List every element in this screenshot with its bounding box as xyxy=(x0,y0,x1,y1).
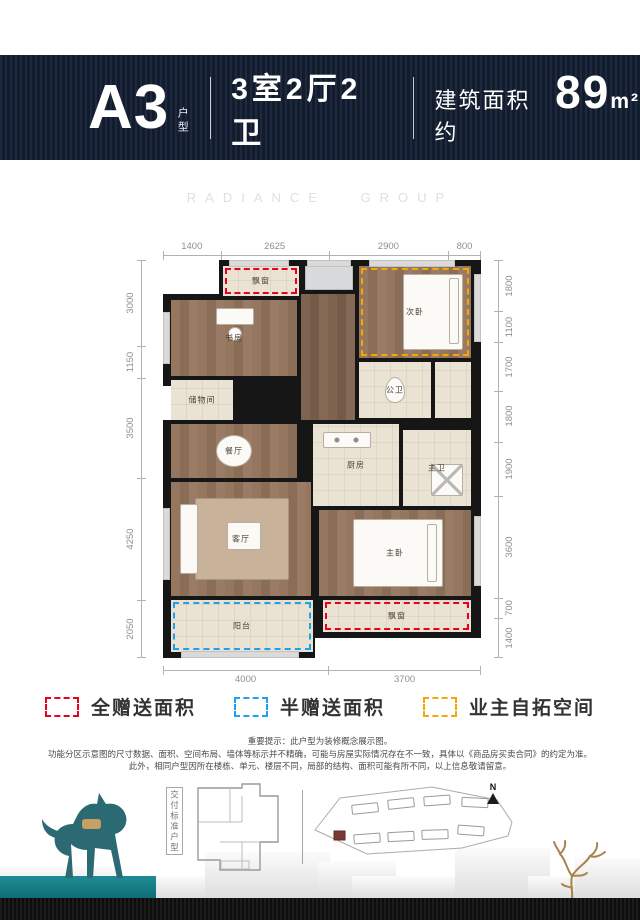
legend-item: 业主自拓空间 xyxy=(423,693,595,720)
room-guest-bathroom: 公卫 xyxy=(359,362,431,418)
dimension-segment: 1900 xyxy=(492,442,514,496)
room-dining-room: 餐厅 xyxy=(171,424,297,478)
room-label: 主卧 xyxy=(319,548,471,559)
dimension-segment: 1400 xyxy=(492,618,514,658)
room-label: 飘窗 xyxy=(223,276,299,287)
dimension-segment: 1100 xyxy=(492,311,514,342)
dimension-segment: 800 xyxy=(448,238,481,260)
legend-label: 业主自拓空间 xyxy=(469,693,595,720)
footer-black-band xyxy=(0,898,640,920)
dimension-segment: 700 xyxy=(492,598,514,618)
delivery-standard-label: 交付标准户型 xyxy=(169,790,181,853)
room-label: 书房 xyxy=(171,333,297,344)
room-master-bathroom: 主卫 xyxy=(403,430,471,506)
dimension-segment: 3700 xyxy=(328,666,481,688)
floorplan: 飘窗次卧书房储物间公卫餐厅厨房主卫客厅主卧阳台飘窗 xyxy=(163,260,481,658)
dimension-segment: 1800 xyxy=(492,391,514,442)
dimension-label: 1800 xyxy=(504,275,515,296)
dimension-label: 4250 xyxy=(125,528,136,549)
legend: 全赠送面积半赠送面积业主自拓空间 xyxy=(0,693,640,720)
room-label: 厨房 xyxy=(313,460,399,471)
dimension-label: 3600 xyxy=(504,537,515,558)
dimension-segment: 1150 xyxy=(126,346,148,379)
dimension-label: 1100 xyxy=(504,317,515,337)
dimension-label: 4000 xyxy=(163,674,328,685)
built-area: 建筑面积约 89 m² xyxy=(434,69,640,147)
dimension-label: 1400 xyxy=(163,241,221,252)
north-compass: N xyxy=(486,783,500,804)
room-label: 公卫 xyxy=(359,385,431,396)
floorplan-poster: A3 户型 3室2厅2卫 建筑面积约 89 m² RADIANCE GROUP … xyxy=(0,0,640,920)
dimension-segment: 2900 xyxy=(329,238,448,260)
room-balcony: 阳台 xyxy=(171,600,313,652)
room-label: 客厅 xyxy=(171,534,311,545)
brand-watermark: RADIANCE GROUP xyxy=(0,190,640,205)
room-closet xyxy=(435,362,471,418)
window xyxy=(229,260,289,267)
window xyxy=(163,508,170,580)
header-band: A3 户型 3室2厅2卫 建筑面积约 89 m² xyxy=(0,55,640,160)
disclaimer-line: 重要提示：此户型为装修概念展示图。 xyxy=(36,735,604,748)
dimension-label: 700 xyxy=(504,600,515,616)
plan-cutout xyxy=(163,260,219,294)
room-label: 餐厅 xyxy=(171,446,297,457)
dimension-label: 3000 xyxy=(125,292,136,313)
mini-floorplan-drawing xyxy=(190,782,285,877)
dimension-label: 3700 xyxy=(328,674,481,685)
plan-cutout xyxy=(315,638,481,658)
room-study: 书房 xyxy=(171,300,297,376)
footer-divider xyxy=(302,790,303,864)
dimension-label: 1800 xyxy=(504,406,515,427)
room-storage: 储物间 xyxy=(171,380,233,420)
room-second-bedroom: 次卧 xyxy=(359,266,471,358)
stove xyxy=(323,432,371,448)
dimension-label: 2900 xyxy=(329,241,448,252)
room-equipment-platform xyxy=(305,266,353,290)
legend-label: 半赠送面积 xyxy=(280,693,385,720)
door-opening xyxy=(163,386,171,420)
dimension-segment: 2050 xyxy=(126,600,148,658)
legend-item: 半赠送面积 xyxy=(234,693,385,720)
dimension-chain-bottom: 40003700 xyxy=(163,666,481,688)
room-label: 次卧 xyxy=(359,307,471,318)
dimension-segment: 2625 xyxy=(221,238,329,260)
room-label: 阳台 xyxy=(171,621,313,632)
legend-item: 全赠送面积 xyxy=(45,693,196,720)
room-living-room: 客厅 xyxy=(171,482,311,596)
room-label: 飘窗 xyxy=(323,611,471,622)
desk xyxy=(216,308,254,325)
dimension-chain-right: 1800110017001800190036007001400 xyxy=(492,260,514,658)
dimension-chain-left: 30001150350042502050 xyxy=(126,260,148,658)
window xyxy=(181,651,299,658)
area-value: 89 xyxy=(555,69,610,115)
branch-decoration xyxy=(532,838,612,905)
legend-label: 全赠送面积 xyxy=(91,693,196,720)
horse-statue xyxy=(35,788,145,888)
highlighted-building xyxy=(334,831,345,840)
area-unit: m² xyxy=(610,90,640,114)
room-label: 主卫 xyxy=(403,463,471,474)
horse-icon xyxy=(35,788,145,883)
north-arrow-icon xyxy=(487,793,499,804)
dimension-chain-top: 140026252900800 xyxy=(163,238,481,260)
room-label: 储物间 xyxy=(171,395,233,406)
dimension-label: 1150 xyxy=(125,352,136,372)
dimension-segment: 3600 xyxy=(492,496,514,598)
north-label: N xyxy=(486,783,500,792)
mini-floorplan xyxy=(190,782,285,882)
unit-suffix: 户型 xyxy=(174,107,190,135)
legend-swatch xyxy=(423,697,457,717)
dimension-label: 1900 xyxy=(504,458,515,479)
disclaimer-line: 此外，相同户型因所在楼栋、单元、楼层不同，局部的结构、面积可能有所不同，以上信息… xyxy=(36,760,604,773)
area-prefix: 建筑面积约 xyxy=(434,83,552,147)
disclaimer-line: 功能分区示意图的尺寸数据、面积、空间布局、墙体等标示并不精确，可能与房屋实际情况… xyxy=(36,748,604,761)
window xyxy=(369,260,455,267)
delivery-standard-box: 交付标准户型 xyxy=(166,787,183,855)
window xyxy=(307,260,351,267)
header-divider xyxy=(413,77,414,139)
dimension-label: 1400 xyxy=(504,628,515,649)
dimension-label: 800 xyxy=(448,241,481,252)
room-kitchen: 厨房 xyxy=(313,424,399,506)
dimension-label: 2050 xyxy=(125,618,136,639)
room-bay-window-top: 飘窗 xyxy=(223,266,299,296)
disclaimer: 重要提示：此户型为装修概念展示图。功能分区示意图的尺寸数据、面积、空间布局、墙体… xyxy=(36,735,604,773)
room-hallway xyxy=(301,294,355,420)
room-count: 3室2厅2卫 xyxy=(231,64,393,152)
dimension-segment: 3000 xyxy=(126,260,148,346)
dimension-segment: 1700 xyxy=(492,342,514,390)
dimension-segment: 1400 xyxy=(163,238,221,260)
window xyxy=(163,312,170,364)
unit-code: A3 xyxy=(88,77,169,139)
window xyxy=(474,516,481,586)
dimension-segment: 4250 xyxy=(126,478,148,599)
dimension-segment: 4000 xyxy=(163,666,328,688)
dimension-label: 1700 xyxy=(504,356,515,377)
room-bay-window-bottom: 飘窗 xyxy=(323,600,471,632)
room-master-bedroom: 主卧 xyxy=(319,510,471,596)
legend-swatch xyxy=(45,697,79,717)
legend-swatch xyxy=(234,697,268,717)
window xyxy=(474,274,481,342)
dimension-label: 3500 xyxy=(125,418,136,439)
branch-icon xyxy=(532,838,612,900)
header-divider xyxy=(210,77,211,139)
dimension-label: 2625 xyxy=(221,241,329,252)
dimension-segment: 3500 xyxy=(126,378,148,478)
dimension-segment: 1800 xyxy=(492,260,514,311)
